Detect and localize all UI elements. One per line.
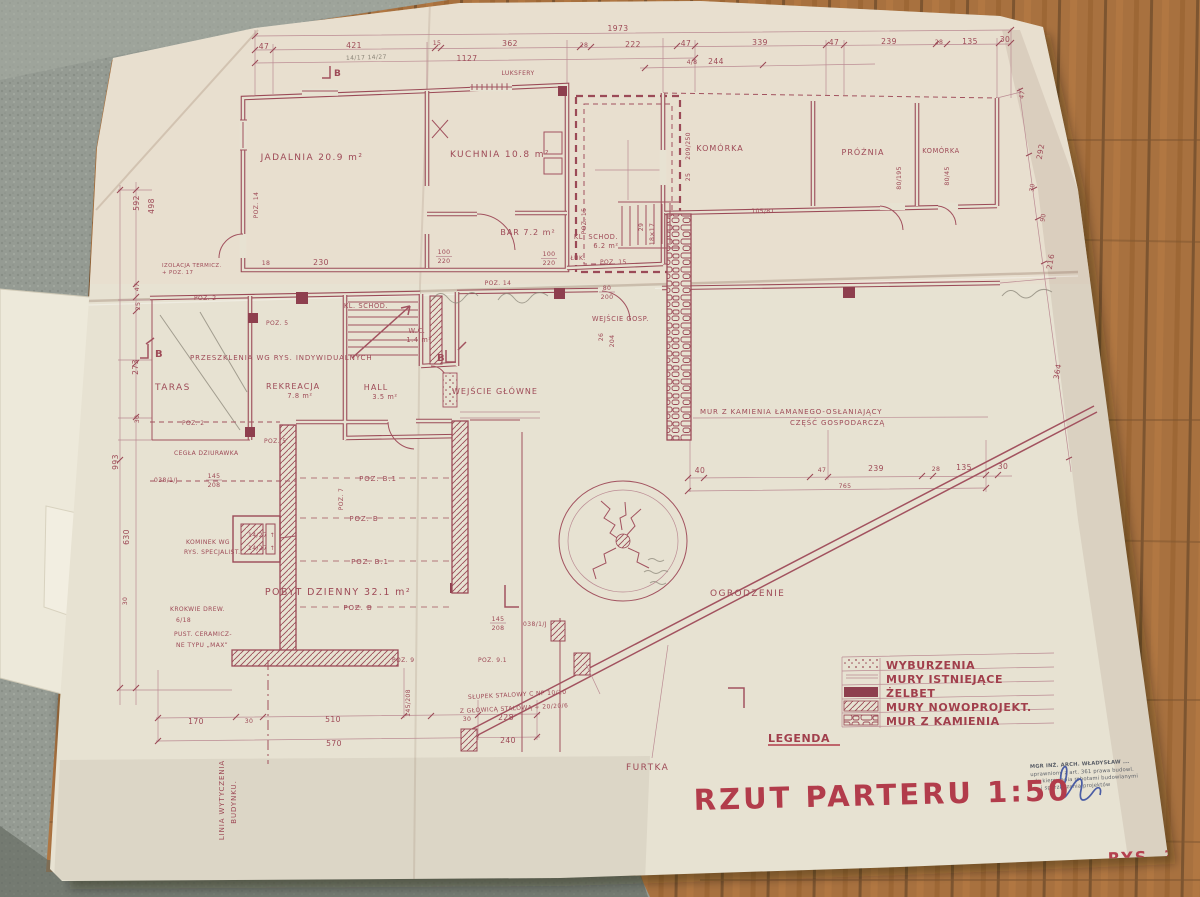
dim-mid-2: 239 <box>868 464 884 473</box>
dim-80-45: 80/45 <box>944 166 951 185</box>
room-bar: BAR 7.2 m² <box>500 228 555 237</box>
dim-left-3: 25 <box>135 302 142 310</box>
photo-of-floor-plan: MGR INŻ. ARCH. WŁADYSŁAW ... uprawniony … <box>0 0 1200 897</box>
poz-9-1: POZ. 9.1 <box>478 657 507 664</box>
room-rekreacja-area: 7.8 m² <box>287 392 312 400</box>
room-wc-area: 1.4 m² <box>406 336 431 344</box>
label-furtka: FURTKA <box>626 763 669 773</box>
room-hall: HALL <box>364 383 388 392</box>
poz-2b: POZ. 2 <box>182 420 204 427</box>
paper-bottom-shade <box>54 756 650 882</box>
dim-top-9: 239 <box>881 37 897 46</box>
dim-top-8: 47 <box>829 38 839 47</box>
dim-left-2: 47 <box>134 283 141 291</box>
dim-230: 230 <box>313 258 329 267</box>
dim-top-6: 47 <box>681 39 691 48</box>
dim-208c: 208 <box>208 482 221 489</box>
dim-25: 25 <box>685 173 692 181</box>
dim-mid-3: 28 <box>932 466 940 473</box>
dim-26: 26 <box>598 333 605 341</box>
dim-top-small-b: 244 <box>708 57 724 66</box>
room-komorka-2: KOMÓRKA <box>922 146 960 155</box>
dim-mid-5: 30 <box>998 462 1008 471</box>
room-jadalnia: JADALNIA 20.9 m² <box>260 153 364 163</box>
dim-145c: 145 <box>208 473 221 480</box>
dim-top-4: 28 <box>580 42 588 49</box>
room-rekreacja: REKREACJA <box>266 382 320 391</box>
dim-left-8: 30 <box>122 597 129 605</box>
dim-80-195: 80/195 <box>896 166 903 190</box>
room-komorka-1: KOMÓRKA <box>696 142 743 153</box>
dim-220a: 220 <box>438 258 451 265</box>
poz-14h: POZ. 14 <box>485 280 512 287</box>
dim-bot-2: 510 <box>325 715 341 724</box>
room-taras: TARAS <box>154 383 191 393</box>
label-wejscie-glowne: WEJŚCIE GŁÓWNE <box>452 385 538 396</box>
dim-bot-4: 228 <box>498 713 514 722</box>
dim-overall: 1973 <box>608 24 629 33</box>
legend-item-kamien: MUR Z KAMIENIA <box>886 715 1000 728</box>
dim-left-0: 592 <box>132 195 141 211</box>
room-kl-schod-area: 6.2 m² <box>593 242 618 250</box>
poz-2a: POZ. 2 <box>194 295 216 302</box>
poz-5a: POZ. 5 <box>266 320 288 327</box>
legend-title: LEGENDA <box>768 732 830 745</box>
note-kominek-1: KOMINEK WG <box>186 539 230 546</box>
dim-mid-0: 40 <box>695 466 705 475</box>
dim-bot-3: 30 <box>463 716 471 723</box>
dim-29: 29 <box>638 223 645 231</box>
note-izolacja-1: IZOLACJA TERMICZ. <box>162 263 222 269</box>
section-b-left: B <box>155 349 163 360</box>
dim-bot-1: 30 <box>245 718 253 725</box>
room-pobyt-dzienny: POBYT DZIENNY 32.1 m² <box>265 587 411 598</box>
poz-15v: POZ. 15 <box>581 208 588 235</box>
dim-mid-1: 47 <box>818 467 826 474</box>
pencil-note: 14/17 14/27 <box>346 54 387 62</box>
dim-left-5: 30 <box>134 415 141 423</box>
note-pustaki-2: NE TYPU „MAX” <box>176 642 228 649</box>
legend-swatch-kamien <box>844 715 878 725</box>
legend-swatch-zelbet <box>844 687 878 697</box>
dim-18x17: 18×17 <box>649 223 656 245</box>
room-wc: W.C. <box>409 327 426 335</box>
dim-100b: 100 <box>543 251 556 258</box>
poz-b-a: POZ. B <box>349 515 378 523</box>
dim-left-6: 993 <box>111 454 120 470</box>
dim-204: 204 <box>609 335 616 348</box>
ref-038-a: 038/1/J <box>154 477 178 484</box>
dim-208d: 208 <box>492 625 505 632</box>
dim-left-1: 498 <box>147 198 156 214</box>
legend-swatch-nowoprojekt <box>844 701 878 711</box>
poz-5b: POZ. 5 <box>264 438 286 445</box>
dim-mid-sub: 765 <box>839 483 852 490</box>
note-izolacja-2: + POZ. 17 <box>162 270 193 276</box>
dim-bot-0: 170 <box>188 717 204 726</box>
note-cegla: CEGŁA DZIURAWKA <box>174 450 239 457</box>
label-luksfery: LUKSFERY <box>501 70 534 77</box>
note-linia-1: LINIA WYTYCZENIA <box>218 760 226 840</box>
note-krokwie-2: 6/18 <box>176 617 191 624</box>
note-mur-1: MUR Z KAMIENIA ŁAMANEGO-OSŁANIAJĄCY <box>700 408 882 416</box>
dim-18: 18 <box>262 260 270 267</box>
dim-left-7: 630 <box>122 529 131 545</box>
legend-item-nowoprojekt: MURY NOWOPROJEKT. <box>886 701 1032 714</box>
legend-item-istniejace: MURY ISTNIEJĄCE <box>886 673 1003 686</box>
poz-b1-a: POZ. B.1 <box>359 475 397 483</box>
dim-top-sub: 1127 <box>457 54 478 63</box>
legend-item-wyburzenia: WYBURZENIA <box>886 659 975 672</box>
dim-100a: 100 <box>438 249 451 256</box>
dim-top-0: 47 <box>259 42 269 51</box>
legend-item-zelbet: ŻELBET <box>886 686 936 700</box>
dim-top-7: 339 <box>752 38 768 47</box>
room-kl-schod-mid: KL. SCHOD. <box>344 302 388 310</box>
note-kominek-2: RYS. SPECJALIST. <box>184 549 240 556</box>
poz-9: POZ. 9 <box>392 657 414 664</box>
note-przeszklenia: PRZESZKLENIA WG RYS. INDYWIDUALNYCH <box>190 354 372 362</box>
dim-frac-e: 145/208 <box>405 689 412 717</box>
dim-right-0: 47 <box>1018 90 1026 100</box>
poz-b-b: POZ. B <box>343 604 372 612</box>
dim-bot2-1: 240 <box>500 736 516 745</box>
dim-top-11: 135 <box>962 37 978 46</box>
poz-7: POZ. 7 <box>338 488 345 510</box>
poz-15h: POZ. 15 <box>600 259 627 266</box>
ref-038-b: 038/1/J <box>523 621 547 628</box>
dim-mid-4: 135 <box>956 463 972 472</box>
dim-top-1: 421 <box>346 41 362 50</box>
note-pustaki-1: PUST. CERAMICZ- <box>174 631 232 638</box>
dim-left-4: 273 <box>131 359 140 375</box>
dim-top-10: 28 <box>935 39 943 46</box>
dim-200: 200 <box>601 294 614 301</box>
dim-arrow-a: 14/27 ↑ <box>248 532 275 539</box>
dim-top-3: 362 <box>502 39 518 48</box>
room-proznia: PRÓŻNIA <box>842 146 885 157</box>
dim-220b: 220 <box>543 260 556 267</box>
dim-top-5: 222 <box>625 40 641 49</box>
dim-80: 80 <box>603 285 611 292</box>
dim-bot2-0: 570 <box>326 739 342 748</box>
dim-top-2: 15 <box>433 40 441 47</box>
label-luk: ŁUK. <box>569 255 585 262</box>
poz-b1-b: POZ. B.1 <box>351 558 389 566</box>
legend-swatch-wyburzenia <box>844 659 878 669</box>
note-krokwie-1: KROKWIE DREW. <box>170 606 225 613</box>
section-b-right: B <box>437 353 445 364</box>
section-b-top: B <box>334 69 341 79</box>
poz-14v: POZ. 14 <box>253 192 260 219</box>
label-wejscie-gosp: WEJŚCIE GOSP. <box>592 314 649 323</box>
dim-209-250: 209/250 <box>685 132 692 160</box>
dim-105-81: 105/81 <box>751 208 775 215</box>
dim-right-2: 30 <box>1028 183 1036 193</box>
dim-top-12: 30 <box>1000 35 1010 44</box>
dim-right-3: 90 <box>1039 213 1047 223</box>
note-linia-2: BUDYNKU. <box>230 780 238 823</box>
room-kuchnia: KUCHNIA 10.8 m² <box>450 150 550 160</box>
floor-plan-scene: MGR INŻ. ARCH. WŁADYSŁAW ... uprawniony … <box>0 0 1200 897</box>
note-mur-2: CZĘŚĆ GOSPODARCZĄ <box>790 418 885 427</box>
dim-arrow-b: 14/27 ↑ <box>248 545 275 552</box>
dim-top-small-a: 4/8 <box>687 59 698 66</box>
room-hall-area: 3.5 m² <box>372 393 397 401</box>
dim-145d: 145 <box>492 616 505 623</box>
label-ogrodzenie: OGRODZENIE <box>710 589 785 599</box>
